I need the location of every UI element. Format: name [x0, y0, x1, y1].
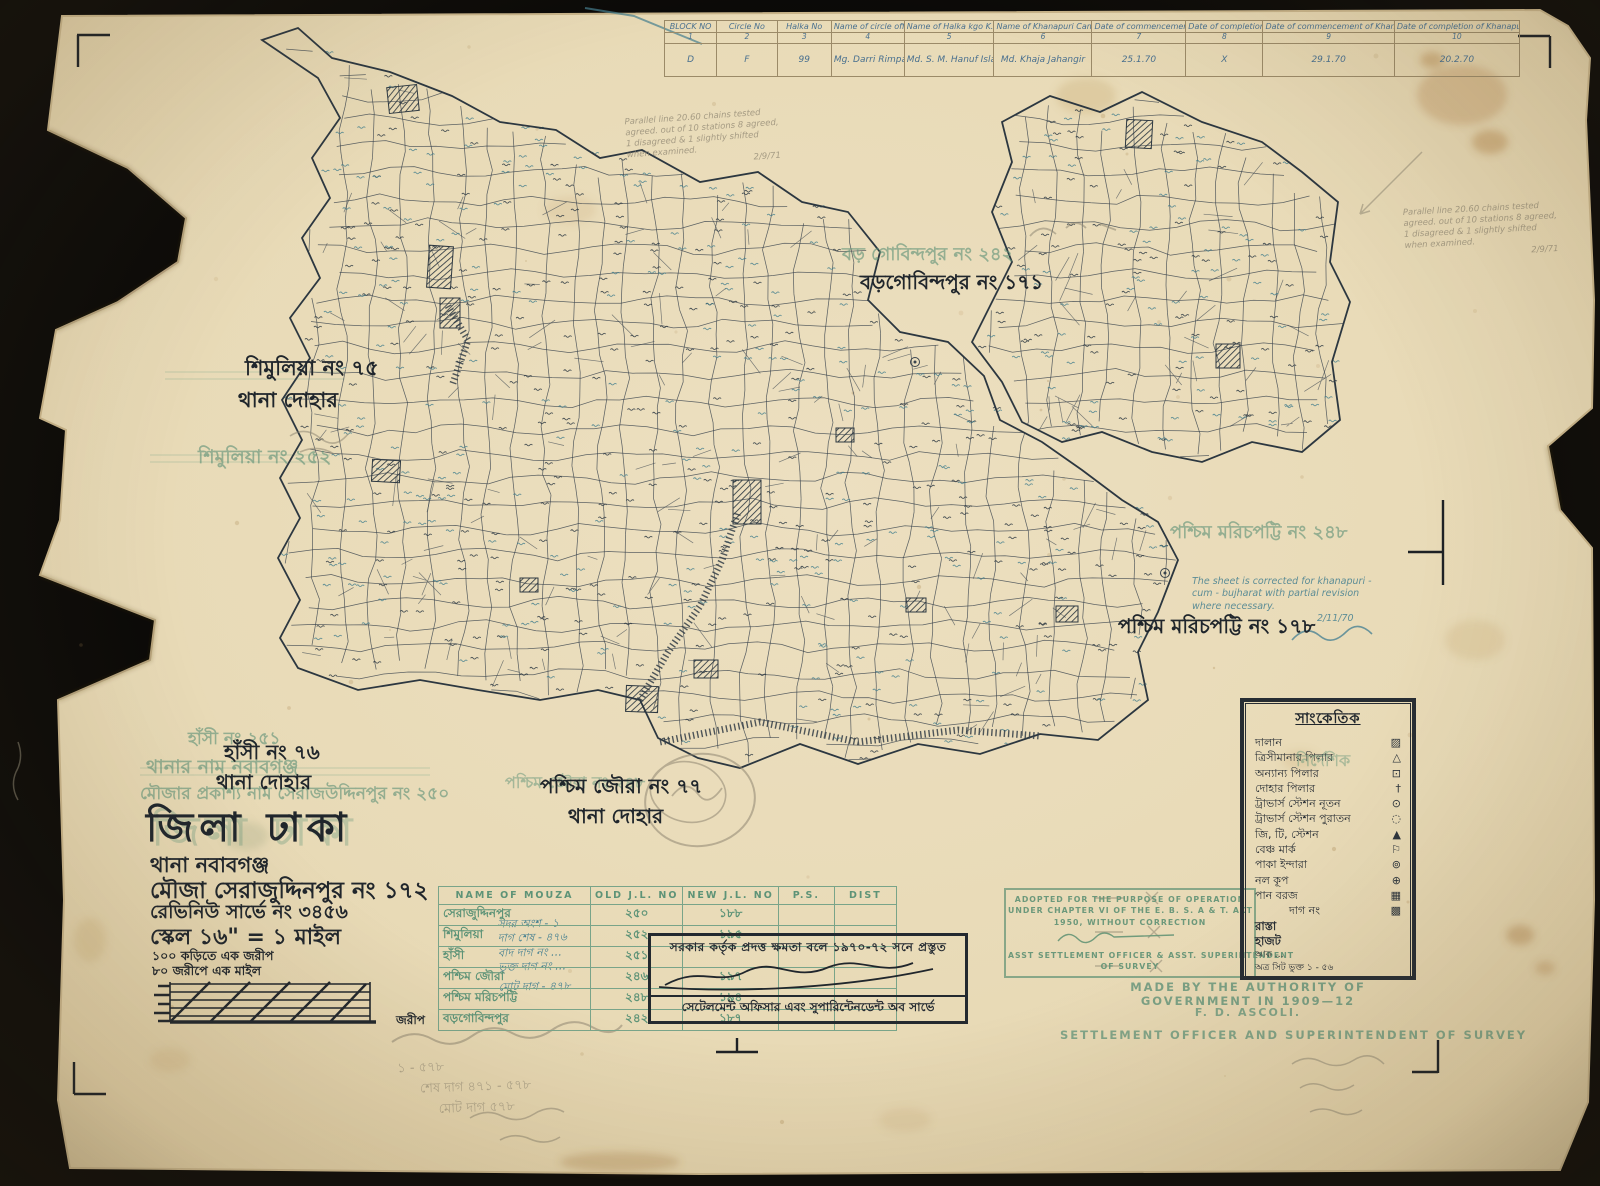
legend-item: দোহার পিলার† [1255, 781, 1401, 796]
betel-garden-symbol: ▦ [1391, 888, 1401, 903]
stamp-line: সেটেলমেন্ট অফিসার এবং সুপারিন্টেনডেন্ট অ… [651, 995, 965, 1021]
gt-station-symbol: ▲ [1393, 827, 1401, 842]
scanned-cadastral-map: BLOCK NOCircle No Halka NoName of circle… [0, 0, 1600, 1186]
legend-inner: সাংকেতিক দালান▨ ত্রিসীমানার পিলার△ অন্যা… [1245, 703, 1411, 979]
adopted-stamp: ADOPTED FOR THE PURPOSE OF OPERATION UND… [1004, 888, 1256, 978]
table-row: সেরাজুদ্দিনপুর২৫০১৮৮ [439, 905, 897, 926]
label-hasi: হাঁসী নং ৭৬ [224, 738, 320, 771]
table-number-row: 12 34 56 78 910 [665, 33, 1520, 44]
ascoli-name: F. D. ASCOLI. [1098, 1006, 1398, 1019]
authority-line: MADE BY THE AUTHORITY OF GOVERNMENT IN 1… [1098, 980, 1398, 1008]
legend-hajot: হাজট [1255, 934, 1401, 949]
stamp-line: 1950, WITHOUT CORRECTION [1008, 917, 1252, 928]
legend-ghost-stamp: নির্দেশিক [1296, 748, 1350, 775]
dohar-pillar-symbol: † [1396, 781, 1402, 796]
other-pillar-symbol: ⊡ [1392, 766, 1401, 781]
legend-item: ট্রাভার্স স্টেশন নূতন⊙ [1255, 796, 1401, 811]
note-date: 2/11/70 [1192, 613, 1372, 625]
legend-rasta: রাস্তা [1255, 919, 1401, 934]
stamp-line: UNDER CHAPTER VI OF THE E. B. S. A & T. … [1008, 905, 1252, 916]
survey-record-table: BLOCK NOCircle No Halka NoName of circle… [664, 20, 1520, 77]
legend-title: সাংকেতিক [1255, 708, 1401, 732]
officer-signature [651, 959, 951, 991]
well-symbol: ⊚ [1392, 857, 1401, 872]
pencil-tally: ১ - ৫৭৮ শেষ দাগ ৪৭১ - ৫৭৮ মোট দাগ ৫৭৮ [397, 1054, 532, 1122]
label-borogobindopur: বড়গোবিন্দপুর নং ১৭১ [860, 268, 1043, 301]
legend-item: বেঞ্চ মার্ক⚐ [1255, 842, 1401, 857]
legend-item: দাগ নং▩ [1255, 903, 1401, 918]
legend-item: পাকা ইন্দারা⊚ [1255, 857, 1401, 872]
benchmark-symbol: ⚐ [1391, 842, 1401, 857]
legend-item: পান বরজ▦ [1255, 888, 1401, 903]
legend-aak: আক … [1255, 949, 1401, 962]
label-shimulia-thana: থানা দোহার [238, 384, 338, 419]
legend-item: ট্রাভার্স স্টেশন পুরাতন◌ [1255, 811, 1401, 826]
stamp-line: OF SURVEY [1008, 961, 1252, 972]
authority-stamp-1970: সরকার কর্তৃক প্রদত্ত ক্ষমতা বলে ১৯৭০-৭২ … [648, 933, 968, 1024]
legend-box: সাংকেতিক দালান▨ ত্রিসীমানার পিলার△ অন্যা… [1240, 698, 1416, 980]
blue-correction-note: The sheet is corrected for khanapuri - c… [1192, 576, 1372, 625]
tubewell-symbol: ⊕ [1392, 873, 1401, 888]
label-morichpotti-green: পশ্চিম মরিচপট্টি নং ২৪৮ [1170, 518, 1347, 549]
table-value-row: DF 99Mg. Darri Rimpa chakherbad A.S.O Md… [665, 44, 1520, 77]
plot-number-symbol: ▩ [1391, 903, 1401, 918]
building-symbol: ▨ [1391, 735, 1401, 750]
stamp-line: ASST SETTLEMENT OFFICER & ASST. SUPERINT… [1008, 950, 1252, 961]
trijunction-pillar-symbol: △ [1393, 750, 1401, 765]
legend-item: নল কূপ⊕ [1255, 873, 1401, 888]
label-borogobindopur-green: বড় গোবিন্দপুর নং ২৪২ [842, 240, 1013, 271]
traverse-new-symbol: ⊙ [1392, 796, 1401, 811]
pencil-note-center: Parallel line 20.60 chains tested agreed… [624, 107, 781, 173]
traverse-old-symbol: ◌ [1391, 811, 1401, 826]
scale-bar-label: জরীপ [396, 1012, 425, 1032]
authority-line: SETTLEMENT OFFICER AND SUPERINTENDENT OF… [1060, 1028, 1440, 1042]
label-joura-thana: থানা দোহার [568, 802, 663, 835]
legend-item: জি, টি, স্টেশন▲ [1255, 827, 1401, 842]
pencil-note-corner: Parallel line 20.60 chains tested agreed… [1403, 200, 1559, 263]
label-joura: পশ্চিম জৌরা নং ৭৭ [540, 772, 702, 805]
legend-sheet-line: অত্র সিট ভুক্ত ১ - ৫৬ [1255, 962, 1401, 975]
stamp-line: ADOPTED FOR THE PURPOSE OF OPERATION [1008, 894, 1252, 905]
scale-bar [152, 978, 392, 1030]
asst-officer-signature [1050, 928, 1210, 946]
mouza-table-header: NAME OF MOUZAOLD J.L. NO NEW J.L. NOP.S.… [439, 887, 897, 905]
label-shimulia: শিমুলিয়া নং ৭৫ [245, 352, 379, 387]
stamp-line: সরকার কর্তৃক প্রদত্ত ক্ষমতা বলে ১৯৭০-৭২ … [651, 936, 965, 959]
label-shimulia-green: শিমুলিয়া নং ২৫২ [198, 443, 331, 475]
table-header-row: BLOCK NOCircle No Halka NoName of circle… [665, 21, 1520, 33]
